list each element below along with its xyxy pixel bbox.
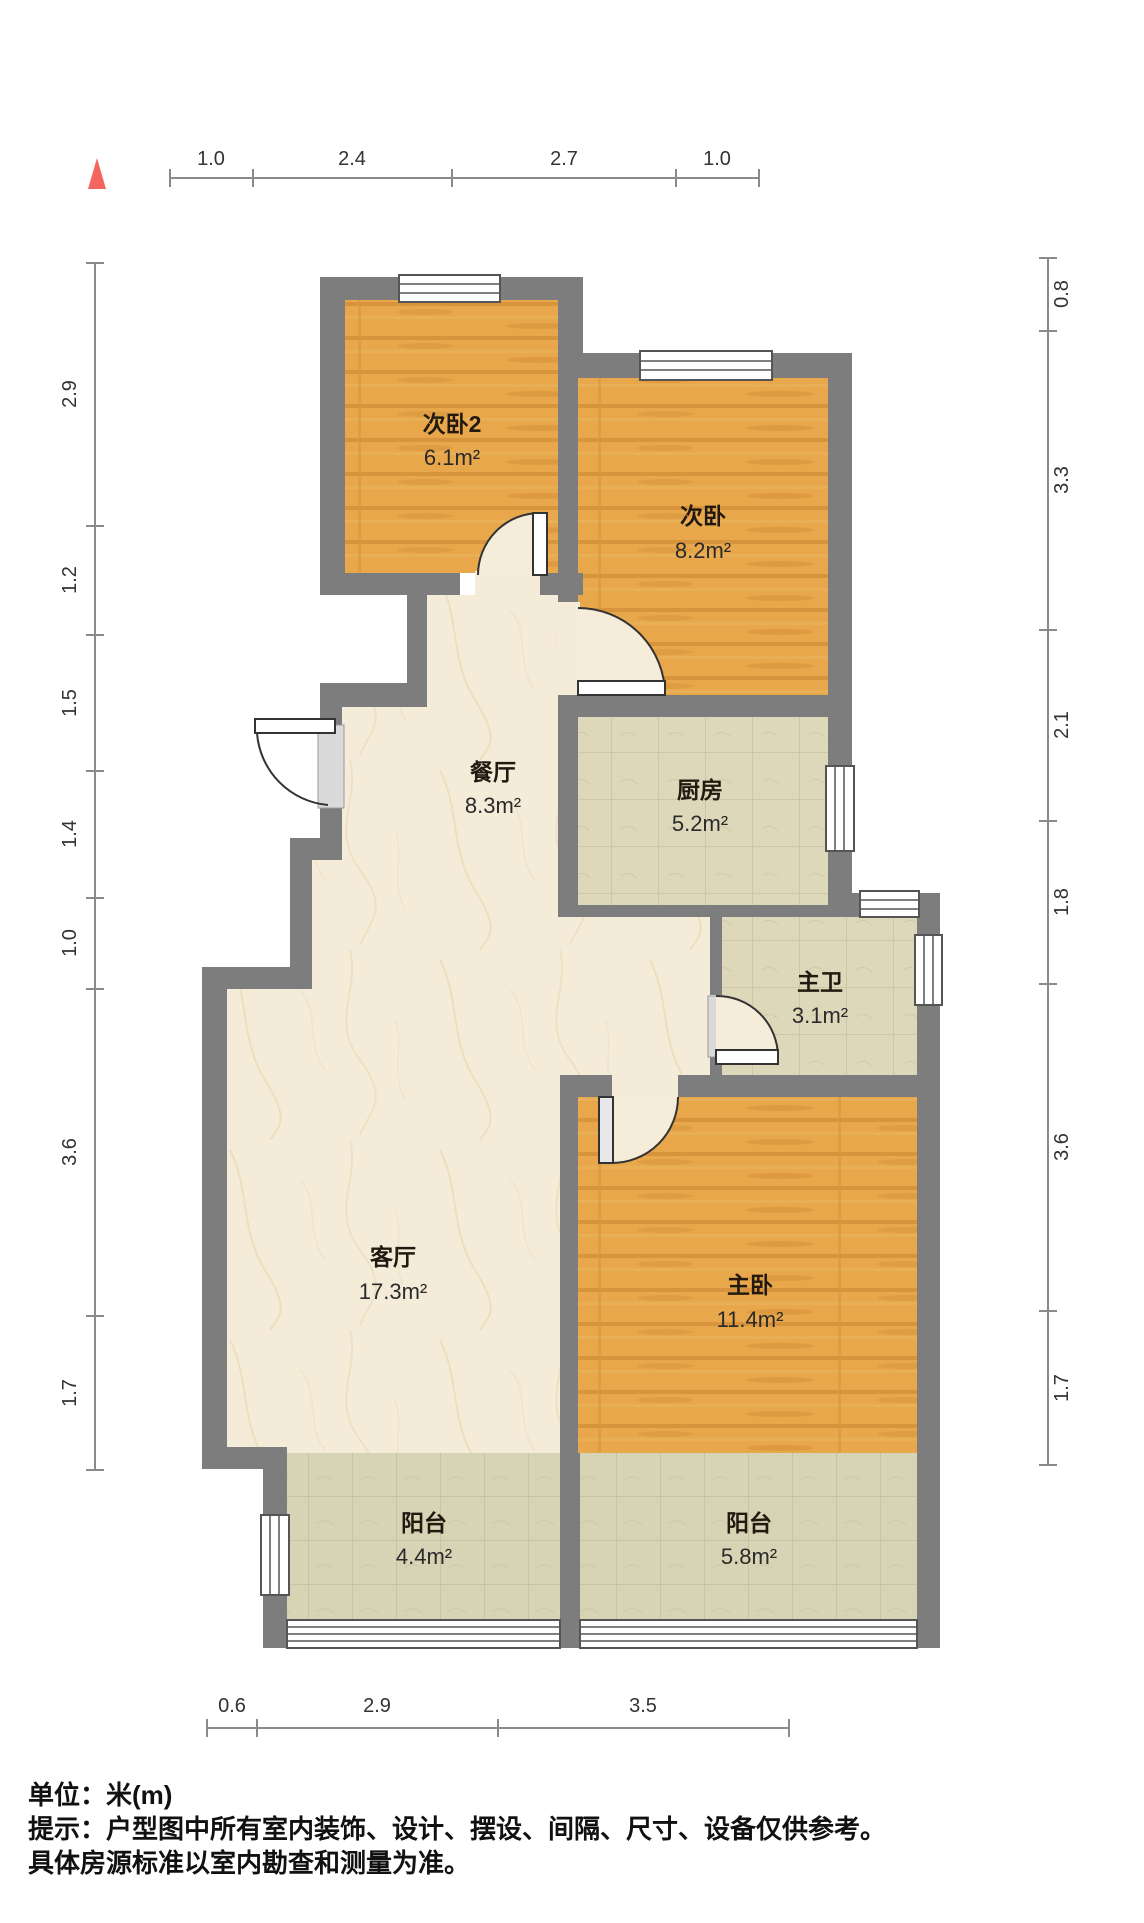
dim-left-2: 1.5	[59, 689, 81, 717]
dim-bottom-0: 0.6	[218, 1695, 246, 1717]
dim-top-1: 2.4	[338, 148, 366, 170]
room-area-dining: 8.3m²	[465, 793, 521, 818]
room-label-master-bath: 主卫	[797, 969, 843, 995]
dim-bottom-2: 3.5	[629, 1695, 657, 1717]
dim-top-0: 1.0	[197, 148, 225, 170]
window-kitchen-right	[826, 766, 854, 851]
window-bedroom-top	[640, 351, 772, 380]
dim-top-2: 2.7	[550, 148, 578, 170]
window-bath-top	[860, 891, 919, 917]
room-label-balcony-left: 阳台	[401, 1510, 447, 1536]
dim-left-4: 1.0	[59, 929, 81, 957]
room-area-master-bath: 3.1m²	[792, 1003, 848, 1028]
room-label-bedroom: 次卧	[680, 503, 726, 529]
dim-top-3: 1.0	[703, 148, 731, 170]
railing-balcony-right	[580, 1620, 917, 1648]
window-bath-right	[915, 935, 942, 1005]
tip-line-1: 提示：户型图中所有室内装饰、设计、摆设、间隔、尺寸、设备仅供参考。	[28, 1812, 1128, 1846]
dim-right-4: 3.6	[1051, 1133, 1073, 1161]
dim-left-3: 1.4	[59, 820, 81, 848]
dim-right-0: 0.8	[1051, 280, 1073, 308]
window-balcony-left	[261, 1515, 289, 1595]
room-label-bedroom2: 次卧2	[423, 411, 482, 437]
dim-right-5: 1.7	[1051, 1374, 1073, 1402]
tip-line-2: 具体房源标准以室内勘查和测量为准。	[28, 1846, 1128, 1880]
room-area-balcony-right: 5.8m²	[721, 1544, 777, 1569]
dim-left-1: 1.2	[59, 566, 81, 594]
door-entry	[255, 719, 344, 808]
dim-right-3: 1.8	[1051, 888, 1073, 916]
room-area-bedroom2: 6.1m²	[424, 445, 480, 470]
footer-notes: 单位：米(m) 提示：户型图中所有室内装饰、设计、摆设、间隔、尺寸、设备仅供参考…	[28, 1778, 1128, 1880]
north-arrow-icon	[88, 158, 106, 189]
room-label-kitchen: 厨房	[677, 777, 723, 803]
room-label-living: 客厅	[370, 1244, 416, 1270]
floorplan-page: 次卧2 6.1m² 次卧 8.2m² 餐厅 8.3m² 厨房 5.2m² 主卫 …	[0, 0, 1144, 1923]
dim-right-2: 2.1	[1051, 711, 1073, 739]
unit-note: 单位：米(m)	[28, 1778, 1128, 1812]
room-label-balcony-right: 阳台	[726, 1510, 772, 1536]
room-label-dining: 餐厅	[470, 759, 516, 785]
room-area-living: 17.3m²	[359, 1279, 427, 1304]
floorplan-canvas: 次卧2 6.1m² 次卧 8.2m² 餐厅 8.3m² 厨房 5.2m² 主卫 …	[0, 0, 1144, 1923]
dim-left-6: 1.7	[59, 1379, 81, 1407]
room-label-master-bedroom: 主卧	[727, 1272, 773, 1298]
dim-left-0: 2.9	[59, 380, 81, 408]
window-bedroom2-top	[399, 275, 500, 302]
dim-left-5: 3.6	[59, 1138, 81, 1166]
room-floor-balcony-right	[580, 1453, 917, 1620]
room-area-bedroom: 8.2m²	[675, 538, 731, 563]
room-area-kitchen: 5.2m²	[672, 811, 728, 836]
dim-bottom-1: 2.9	[363, 1695, 391, 1717]
dim-right-1: 3.3	[1051, 466, 1073, 494]
room-area-balcony-left: 4.4m²	[396, 1544, 452, 1569]
room-area-master-bedroom: 11.4m²	[717, 1307, 784, 1332]
railing-balcony-left	[287, 1620, 560, 1648]
room-floor-balcony-left	[287, 1453, 560, 1620]
